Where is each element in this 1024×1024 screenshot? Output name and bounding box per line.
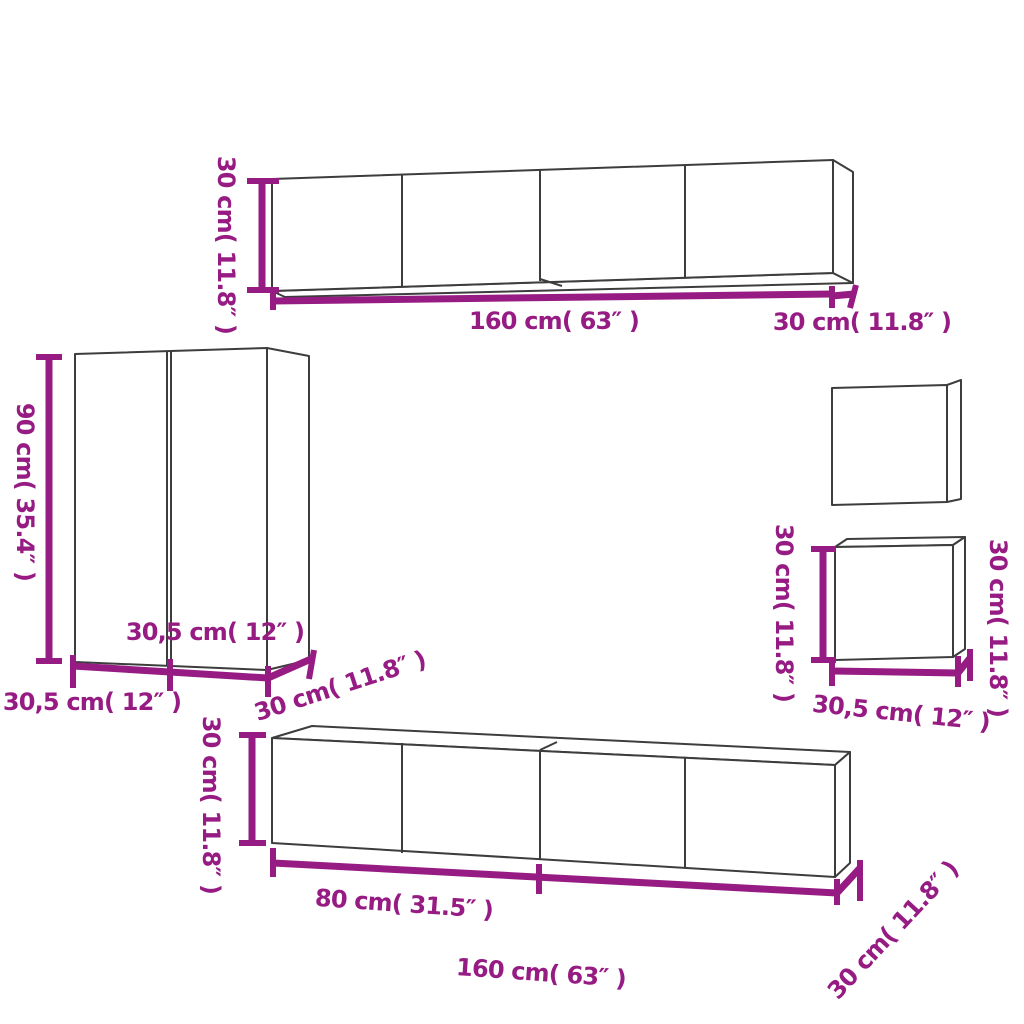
bottom-cabinet-drawing bbox=[272, 726, 850, 877]
small-cabinet-height-left-label: 30 cm( 11.8″ ) bbox=[772, 524, 796, 702]
top-cabinet-width-label: 160 cm( 63″ ) bbox=[469, 309, 639, 333]
small-cabinet-height-right-label: 30 cm( 11.8″ ) bbox=[986, 539, 1010, 717]
furniture-dimension-diagram: 30 cm( 11.8″ ) 160 cm( 63″ ) 30 cm( 11.8… bbox=[0, 0, 1024, 1024]
top-cabinet-height-label: 30 cm( 11.8″ ) bbox=[214, 156, 238, 334]
diagram-canvas bbox=[0, 0, 1024, 1024]
tall-cabinet-door-width-label: 30,5 cm( 12″ ) bbox=[126, 620, 304, 644]
bottom-cabinet-height-label: 30 cm( 11.8″ ) bbox=[199, 716, 223, 894]
small-cabinet-bottom-drawing bbox=[835, 537, 965, 660]
small-cabinet-top-drawing bbox=[832, 380, 961, 505]
top-cabinet-depth-label: 30 cm( 11.8″ ) bbox=[773, 310, 951, 334]
top-cabinet-drawing bbox=[272, 160, 853, 297]
tall-cabinet-width-label: 30,5 cm( 12″ ) bbox=[3, 690, 181, 714]
tall-cabinet-height-label: 90 cm( 35.4″ ) bbox=[13, 403, 37, 581]
